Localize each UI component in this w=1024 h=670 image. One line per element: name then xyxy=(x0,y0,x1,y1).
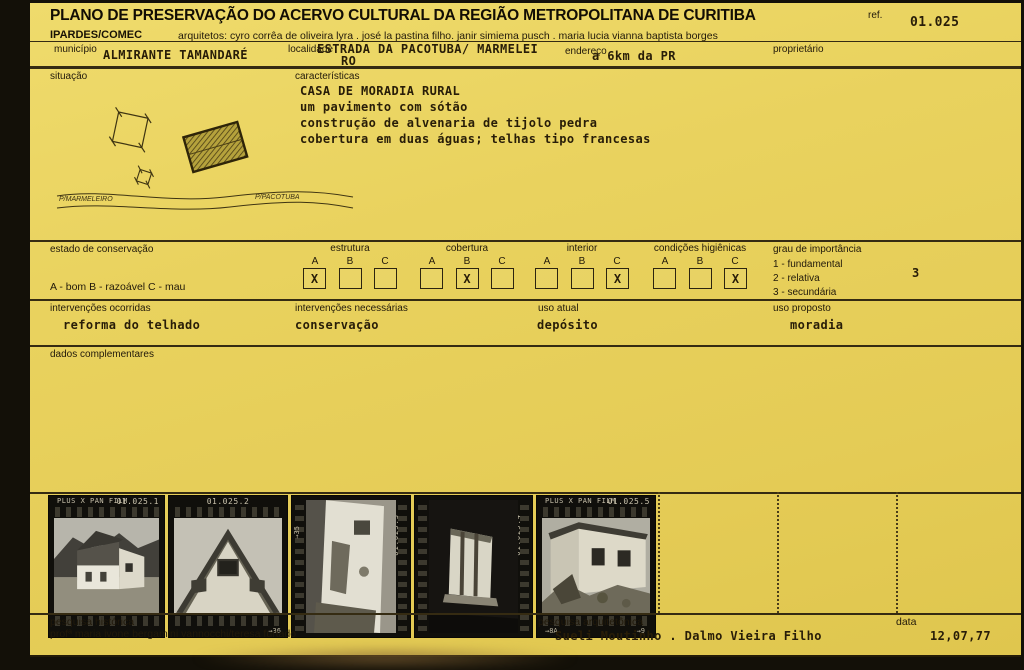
checkbox-cobertura-a[interactable] xyxy=(420,268,443,289)
film-sprockets xyxy=(172,507,284,517)
site-sketch: P/MARMELEIRO P/PACOTUBA xyxy=(55,98,355,218)
checkbox-condicoes-c[interactable]: X xyxy=(724,268,747,289)
org-name: IPARDES/COMEC xyxy=(50,29,142,41)
divider-conservation-top xyxy=(30,240,1021,242)
option-letters: ABC xyxy=(653,256,747,267)
proposed-use-value: moradia xyxy=(790,318,843,332)
current-use-label: uso atual xyxy=(538,303,579,314)
complementary-label: dados complementares xyxy=(50,349,154,360)
arch-research-value: Sueli Moutinho . Dalmo Vieira Filho xyxy=(555,629,822,643)
endereco-value: a 6km da PR xyxy=(592,49,676,63)
municipio-label: município xyxy=(54,44,97,55)
group-label: cobertura xyxy=(420,243,514,254)
photo-image-house-corner xyxy=(542,518,650,615)
hist-research-value: profª maria ivone bergamini vannocchi/te… xyxy=(50,628,296,640)
occurred-value: reforma do telhado xyxy=(63,318,200,332)
road-label-right: P/PACOTUBA xyxy=(255,194,300,201)
checkbox-cobertura-c[interactable] xyxy=(491,268,514,289)
group-label: condições higiênicas xyxy=(653,243,747,254)
sketch-open-square xyxy=(107,107,154,152)
ref-label: ref. xyxy=(868,10,882,21)
current-use-value: depósito xyxy=(537,318,598,332)
importance-item: 1 - fundamental xyxy=(773,258,843,272)
dotted-separator xyxy=(777,492,779,613)
checkbox-interior-c[interactable]: X xyxy=(606,268,629,289)
scan-glare-artifact xyxy=(190,646,580,670)
option-letters: ABC xyxy=(420,256,514,267)
photo-frame-4: 01.025.4 xyxy=(414,495,533,638)
film-sprockets xyxy=(540,507,652,517)
proprietario-label: proprietário xyxy=(773,44,824,55)
photo-image-gable xyxy=(174,518,282,615)
sketch-building xyxy=(183,122,247,172)
scanned-form-page: PLANO DE PRESERVAÇÃO DO ACERVO CULTURAL … xyxy=(0,0,1024,670)
importance-item: 2 - relativa xyxy=(773,272,820,286)
preservation-form-card: PLANO DE PRESERVAÇÃO DO ACERVO CULTURAL … xyxy=(30,3,1021,657)
importance-label: grau de importância xyxy=(773,244,861,255)
checkbox-estrutura-c[interactable] xyxy=(374,268,397,289)
checkbox-estrutura-a[interactable]: X xyxy=(303,268,326,289)
caracteristica-line: CASA DE MORADIA RURAL xyxy=(300,84,460,98)
needed-label: intervenções necessárias xyxy=(295,303,408,314)
form-title: PLANO DE PRESERVAÇÃO DO ACERVO CULTURAL … xyxy=(50,7,756,25)
photo-id: 01.025.1 xyxy=(116,497,159,506)
film-text: PLUS X PAN FILM xyxy=(545,497,616,505)
option-letters: ABC xyxy=(535,256,629,267)
film-sprockets xyxy=(172,616,284,626)
importance-value: 3 xyxy=(912,266,920,280)
dotted-separator xyxy=(658,492,660,613)
film-sprockets xyxy=(52,507,161,517)
conservation-legend: A - bom B - razoável C - mau xyxy=(50,281,185,293)
needed-value: conservação xyxy=(295,318,379,332)
photo-id: 01.025.2 xyxy=(169,497,287,506)
municipio-value: ALMIRANTE TAMANDARÉ xyxy=(103,48,248,62)
group-label: estrutura xyxy=(303,243,397,254)
date-value: 12,07,77 xyxy=(930,629,991,643)
conservation-section-label: estado de conservação xyxy=(50,244,153,255)
checkbox-cobertura-b[interactable]: X xyxy=(456,268,479,289)
divider-identification xyxy=(30,66,1021,69)
photo-frame-2: 01.025.2 →36 xyxy=(168,495,288,638)
photo-image-house-view xyxy=(54,518,159,615)
divider-footer xyxy=(30,613,1021,615)
date-label: data xyxy=(896,616,916,628)
checkbox-estrutura-b[interactable] xyxy=(339,268,362,289)
situacao-label: situação xyxy=(50,71,87,82)
checkbox-condicoes-a[interactable] xyxy=(653,268,676,289)
importance-item: 3 - secundária xyxy=(773,286,836,300)
film-frame-mark: →35 xyxy=(293,526,301,539)
checkbox-condicoes-b[interactable] xyxy=(689,268,712,289)
proposed-use-label: uso proposto xyxy=(773,303,831,314)
sketch-small-square xyxy=(133,166,156,189)
divider-photo-band xyxy=(30,492,1021,494)
hist-research-label: pesquisa histórica xyxy=(50,616,134,628)
photo-frame-3: 01.025.3 →35 xyxy=(291,495,411,638)
divider-interventions xyxy=(30,299,1021,301)
checkbox-interior-b[interactable] xyxy=(571,268,594,289)
ref-value: 01.025 xyxy=(910,15,959,30)
photo-id: 01.025.5 xyxy=(607,497,650,506)
option-letters: ABC xyxy=(303,256,397,267)
group-label: interior xyxy=(535,243,629,254)
dotted-separator xyxy=(896,492,898,613)
caracteristicas-label: características xyxy=(295,71,359,82)
arch-research-label: pesquisa arquitetônica xyxy=(538,616,643,628)
divider-complementary xyxy=(30,345,1021,347)
road-label-left: P/MARMELEIRO xyxy=(59,196,113,203)
checkbox-interior-a[interactable] xyxy=(535,268,558,289)
occurred-label: intervenções ocorridas xyxy=(50,303,151,314)
